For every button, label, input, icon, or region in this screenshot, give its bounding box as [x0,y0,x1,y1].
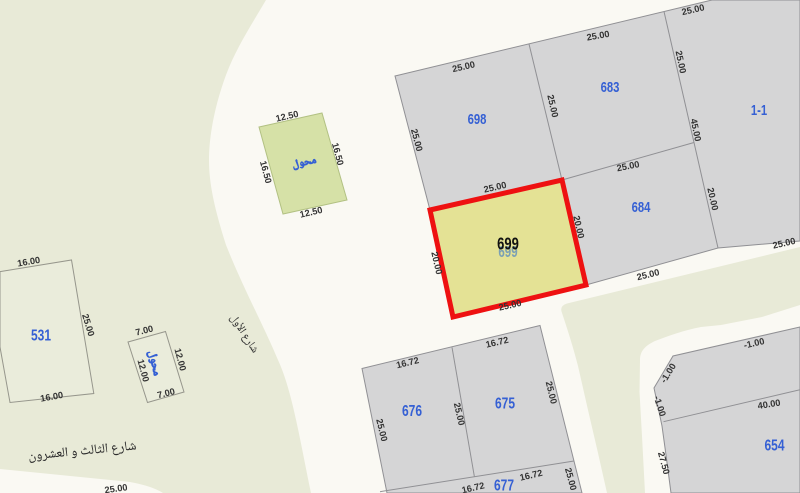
svg-text:654: 654 [764,437,784,454]
svg-text:531: 531 [31,327,51,344]
svg-text:699: 699 [497,235,519,254]
svg-text:675: 675 [495,395,515,412]
svg-text:676: 676 [402,403,422,420]
svg-text:683: 683 [601,79,620,96]
svg-text:677: 677 [494,477,514,493]
svg-text:698: 698 [468,111,487,128]
svg-text:684: 684 [632,199,652,216]
svg-text:1-1: 1-1 [751,102,767,119]
